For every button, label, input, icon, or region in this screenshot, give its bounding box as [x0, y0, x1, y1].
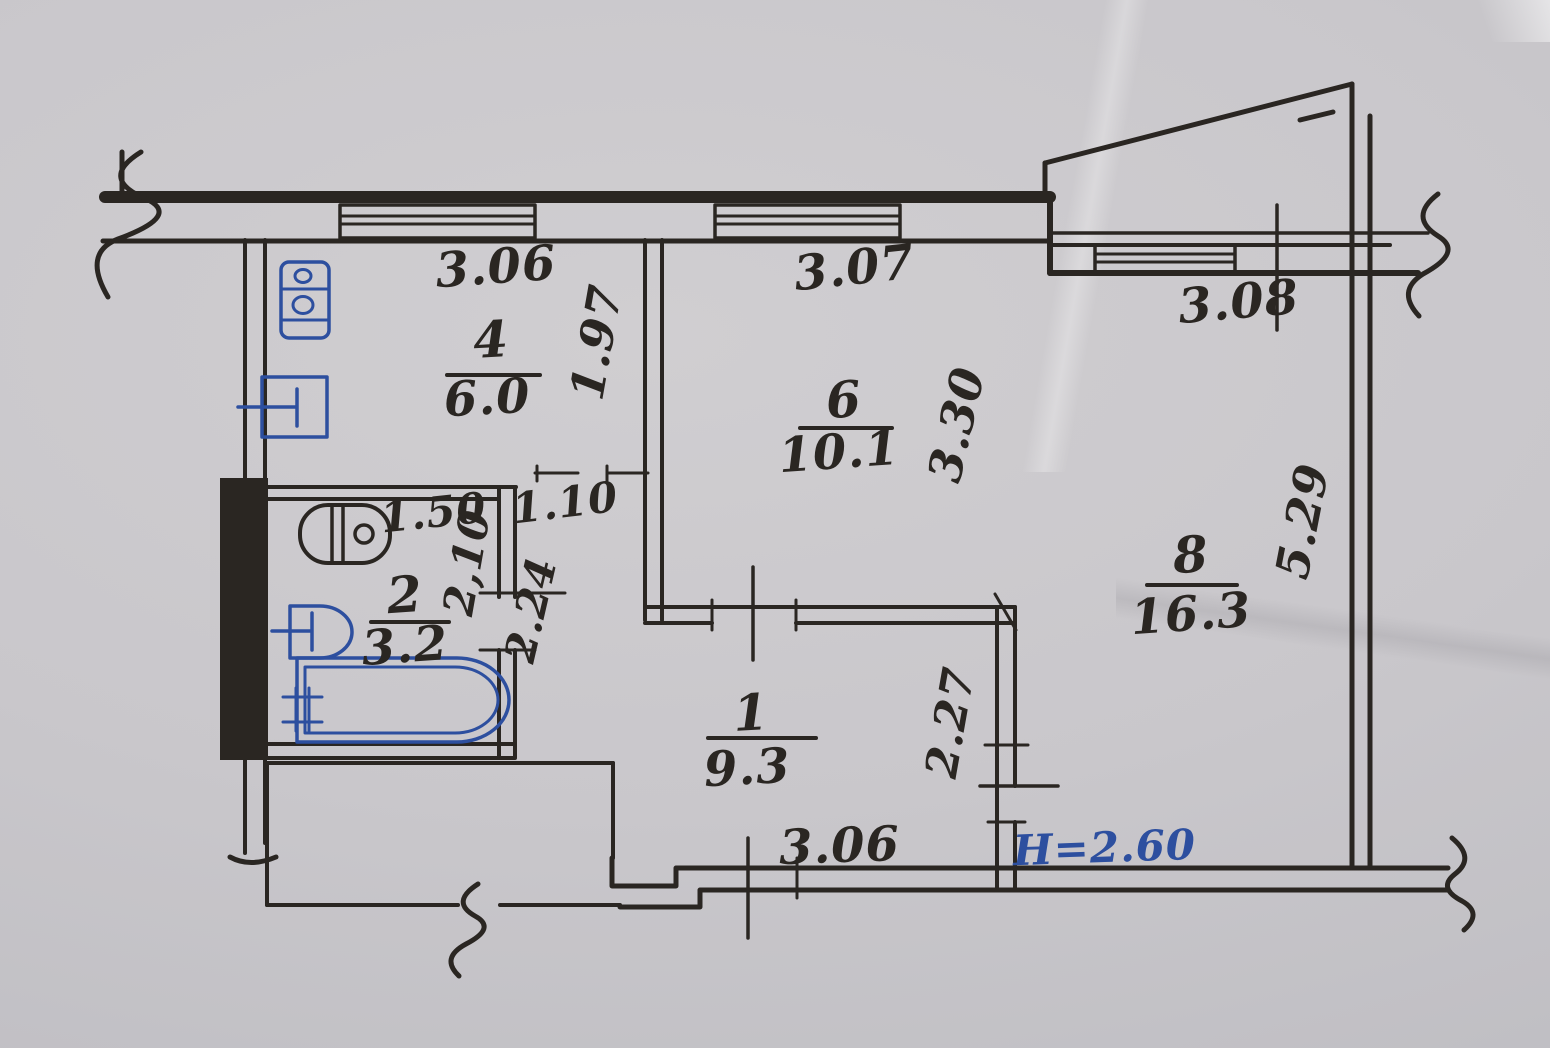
window-symbol-room8: [1095, 245, 1235, 273]
room-1-number: 1: [732, 682, 771, 743]
floorplan-drawing: 4 6.0 6 10.1 8 16.3 2 3.2 1 9.3 3.06 3.0…: [0, 0, 1550, 1048]
room-1-area: 9.3: [702, 738, 791, 798]
dim-hall-width: 3.06: [778, 816, 901, 876]
room-2-label: 2 3.2: [360, 564, 450, 677]
wall-end-foot: [230, 857, 276, 863]
room-8-label: 8 16.3: [1129, 524, 1254, 646]
dim-room6-window: 3.07: [791, 234, 917, 302]
gas-stove-icon: [281, 262, 329, 338]
thick-wall: [220, 478, 268, 760]
dim-hall-room8-wall: 2.27: [916, 663, 986, 782]
room-2-area: 3.2: [360, 615, 450, 677]
room-6-number: 6: [824, 369, 864, 430]
dim-kitchen-depth: 1.97: [560, 280, 633, 404]
ceiling-height-note: H=2.60: [1011, 820, 1197, 875]
washbasin-icon: [272, 606, 352, 658]
kitchen-room6-wall: [645, 240, 662, 620]
dim-kitchen-window: 3.06: [434, 235, 559, 299]
wall-break-symbol: [451, 884, 484, 976]
wall-break-symbol: [1447, 838, 1473, 930]
window-symbol-room6: [715, 205, 900, 238]
room-6-label: 6 10.1: [777, 369, 902, 484]
balcony-dash: [1300, 112, 1333, 120]
toilet-icon: [300, 505, 390, 563]
dim-room6-depth: 3.30: [917, 362, 996, 487]
wall-break-symbol: [97, 152, 159, 297]
kitchen-sink-icon: [238, 377, 327, 437]
dim-bathroom-depth: 2.24: [495, 552, 567, 668]
dim-room8-depth: 5.29: [1265, 459, 1340, 583]
room-8-area: 16.3: [1129, 582, 1254, 646]
window-symbol-kitchen: [340, 205, 535, 238]
room-4-area: 6.0: [442, 368, 531, 428]
room-8-number: 8: [1170, 524, 1211, 585]
faucet-grid: [283, 688, 322, 731]
east-wall: [1352, 84, 1370, 868]
balcony-outline: [1045, 84, 1352, 197]
dim-room8-window: 3.08: [1176, 269, 1301, 335]
dim-corridor-width: 1.10: [509, 472, 620, 534]
room6-south-wall: [645, 567, 1015, 660]
stair-landing: [267, 763, 620, 976]
wall-break-symbol: [1408, 194, 1448, 316]
room-4-label: 4 6.0: [442, 309, 540, 428]
room-4-number: 4: [472, 309, 511, 370]
room-1-label: 1 9.3: [702, 682, 816, 798]
room-6-area: 10.1: [777, 420, 902, 484]
floorplan-photo: 4 6.0 6 10.1 8 16.3 2 3.2 1 9.3 3.06 3.0…: [0, 0, 1550, 1048]
